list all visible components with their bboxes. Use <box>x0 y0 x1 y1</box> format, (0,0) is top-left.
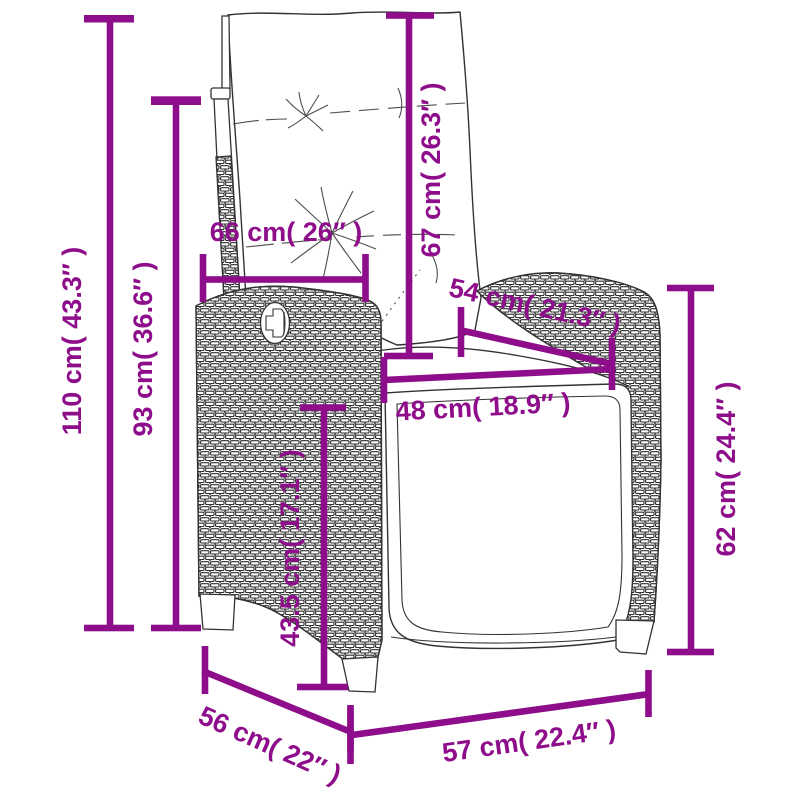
svg-text:43.5 cm( 17.1″ ): 43.5 cm( 17.1″ ) <box>275 449 305 647</box>
svg-text:66 cm( 26″ ): 66 cm( 26″ ) <box>210 217 363 247</box>
svg-text:67 cm( 26.3″ ): 67 cm( 26.3″ ) <box>416 82 446 257</box>
svg-text:110 cm( 43.3″ ): 110 cm( 43.3″ ) <box>57 247 87 436</box>
svg-text:93 cm( 36.6″ ): 93 cm( 36.6″ ) <box>128 261 158 436</box>
svg-text:62 cm( 24.4″ ): 62 cm( 24.4″ ) <box>711 381 741 556</box>
